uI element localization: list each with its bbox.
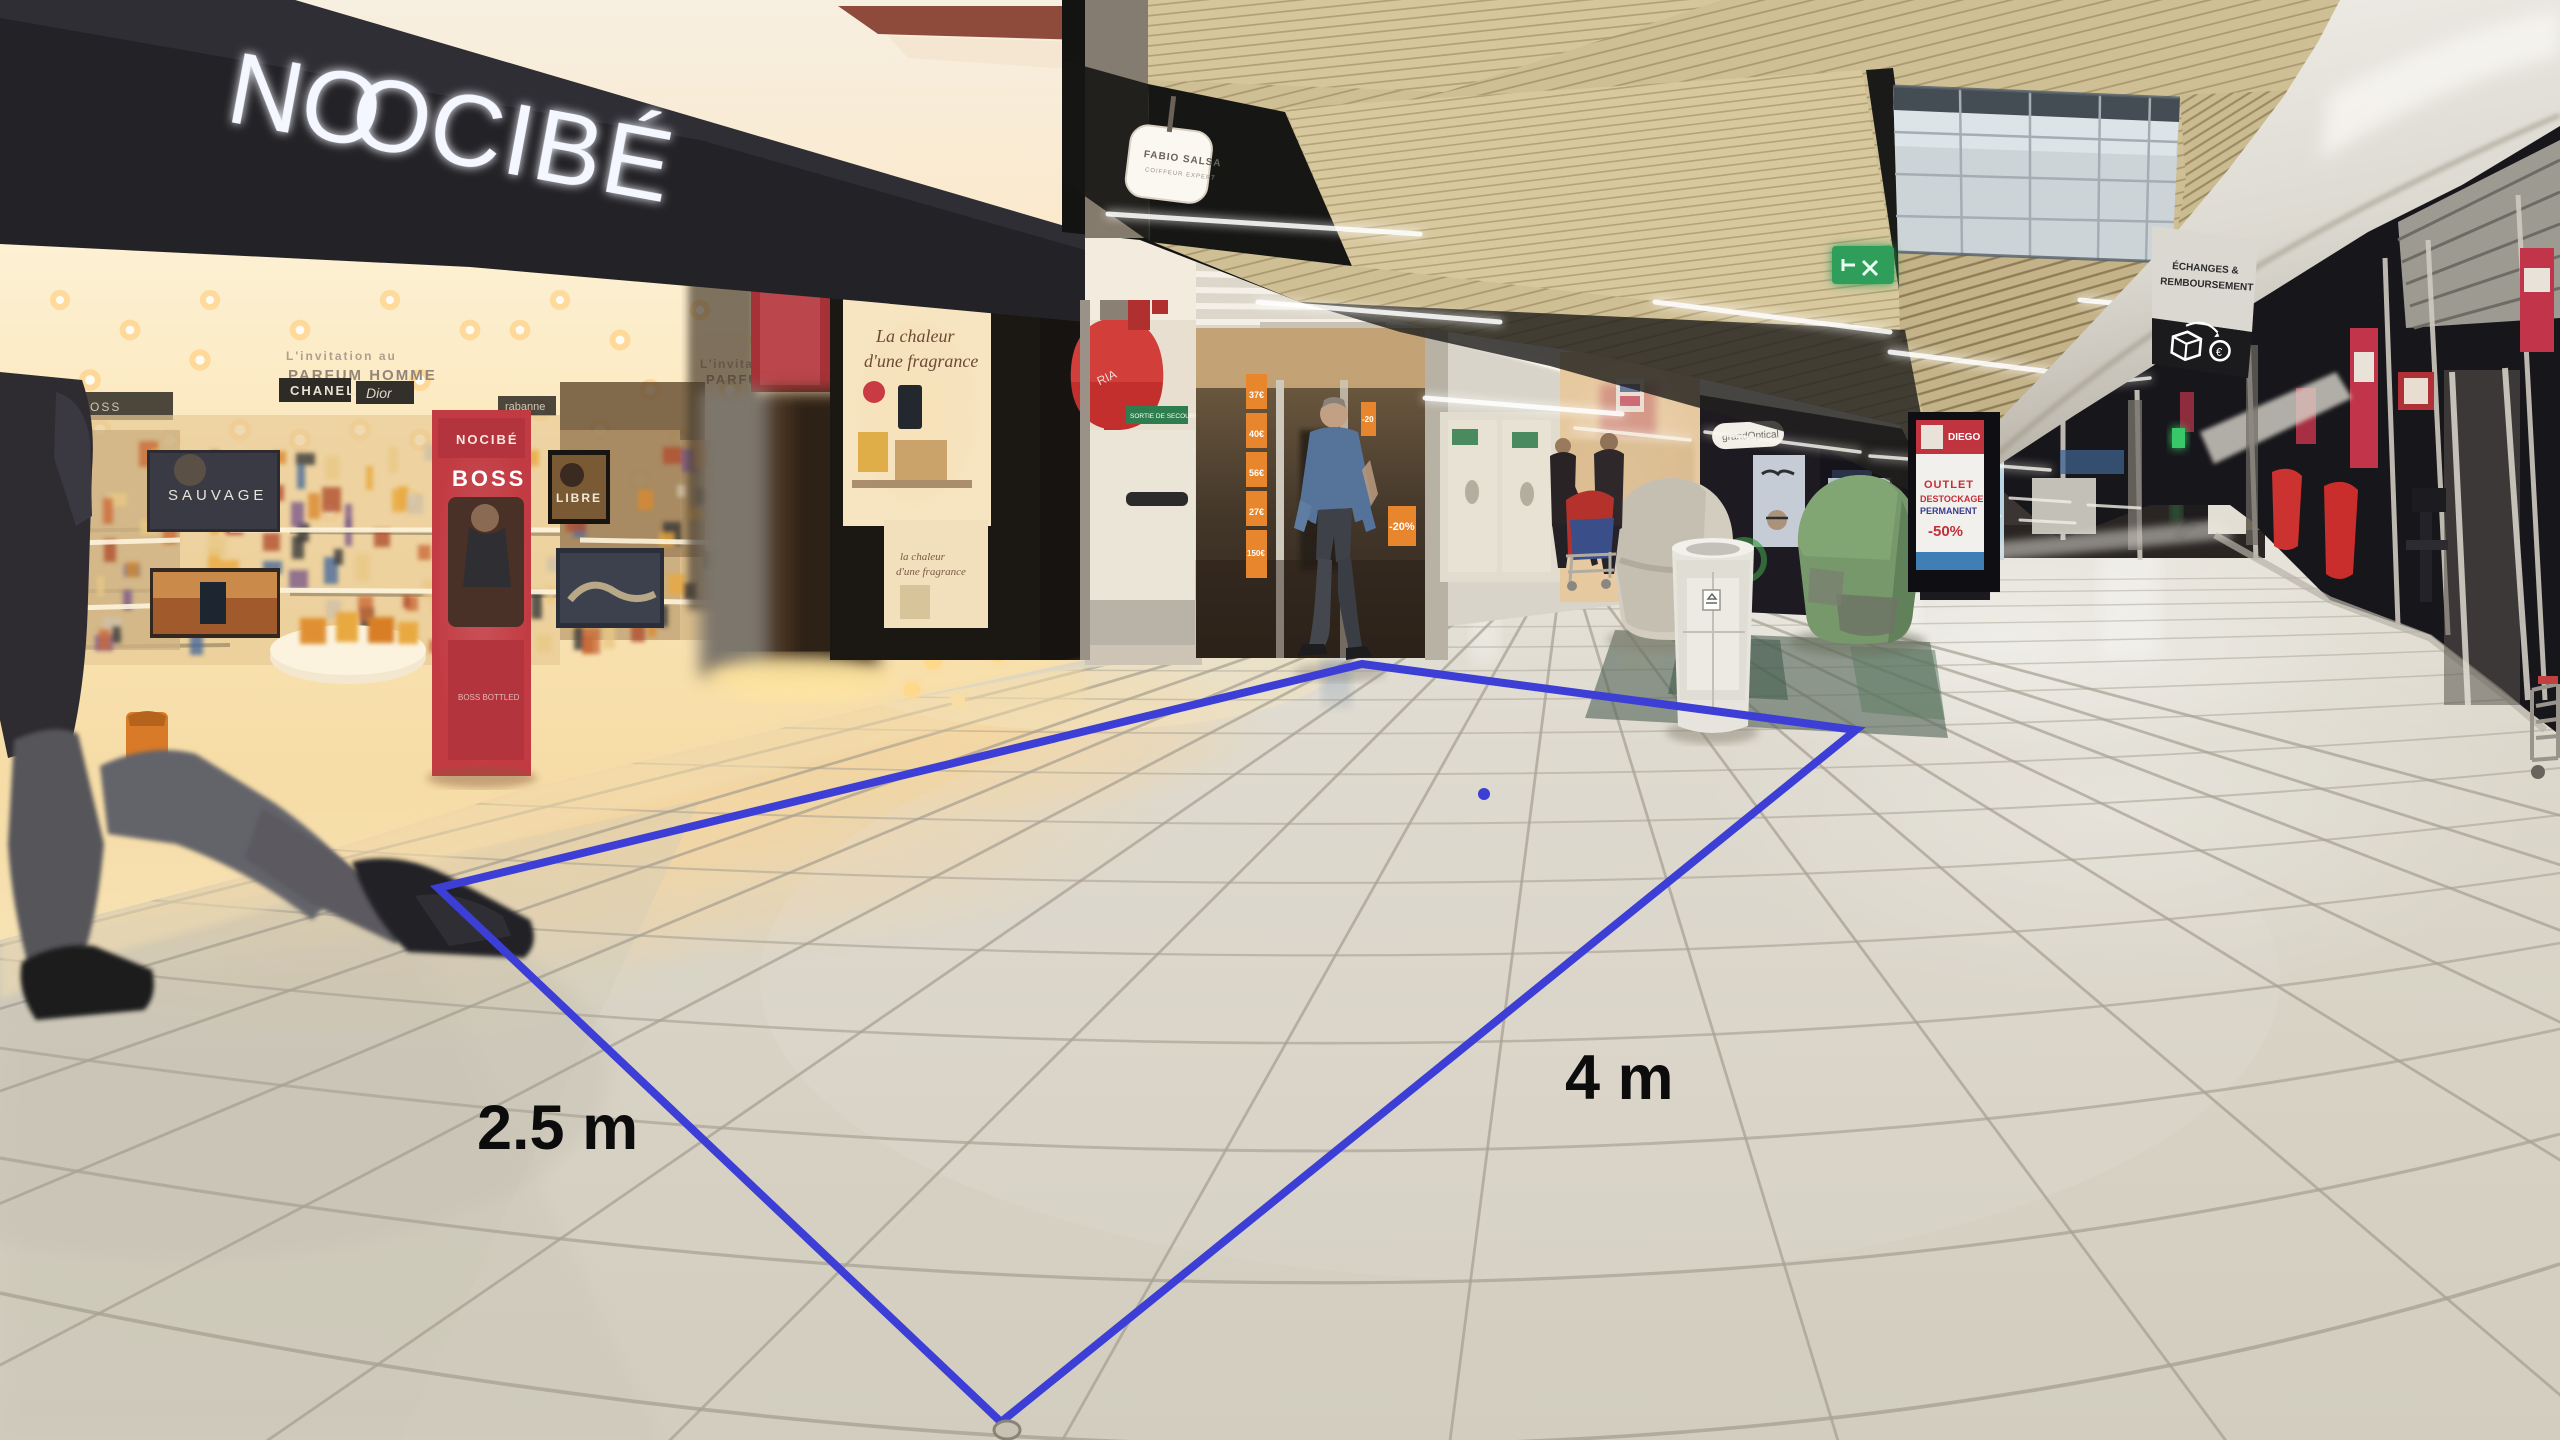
svg-text:NOCIBÉ: NOCIBÉ <box>456 432 519 447</box>
svg-text:37€: 37€ <box>1249 390 1264 400</box>
svg-text:-20%: -20% <box>1389 521 1415 533</box>
svg-text:d'une fragrance: d'une fragrance <box>864 351 978 371</box>
svg-text:SORTIE DE SECOURS: SORTIE DE SECOURS <box>1130 413 1200 420</box>
svg-text:150€: 150€ <box>1247 549 1265 558</box>
svg-text:4 m: 4 m <box>1565 1043 1674 1113</box>
svg-text:27€: 27€ <box>1249 507 1264 517</box>
svg-text:DIEGO: DIEGO <box>1948 432 1980 443</box>
svg-text:SAUVAGE: SAUVAGE <box>168 487 267 504</box>
svg-text:BOSS BOTTLED: BOSS BOTTLED <box>458 693 520 702</box>
svg-text:€: € <box>2215 346 2222 358</box>
svg-text:la chaleur: la chaleur <box>900 551 946 563</box>
svg-text:d'une fragrance: d'une fragrance <box>896 566 966 578</box>
svg-text:Dior: Dior <box>366 385 393 401</box>
svg-text:LIBRE: LIBRE <box>556 491 602 505</box>
svg-text:2.5 m: 2.5 m <box>477 1093 638 1163</box>
svg-text:CHANEL: CHANEL <box>290 383 356 398</box>
svg-text:L'invitation au: L'invitation au <box>286 349 397 363</box>
svg-text:DESTOCKAGE: DESTOCKAGE <box>1920 494 1983 504</box>
svg-text:OUTLET: OUTLET <box>1924 479 1974 491</box>
svg-text:40€: 40€ <box>1249 429 1264 439</box>
svg-text:BOSS: BOSS <box>452 466 526 491</box>
svg-text:La chaleur: La chaleur <box>875 326 955 346</box>
svg-text:PERMANENT: PERMANENT <box>1920 506 1978 516</box>
svg-text:-20: -20 <box>1362 415 1374 424</box>
svg-text:56€: 56€ <box>1249 468 1264 478</box>
svg-text:-50%: -50% <box>1928 523 1963 540</box>
